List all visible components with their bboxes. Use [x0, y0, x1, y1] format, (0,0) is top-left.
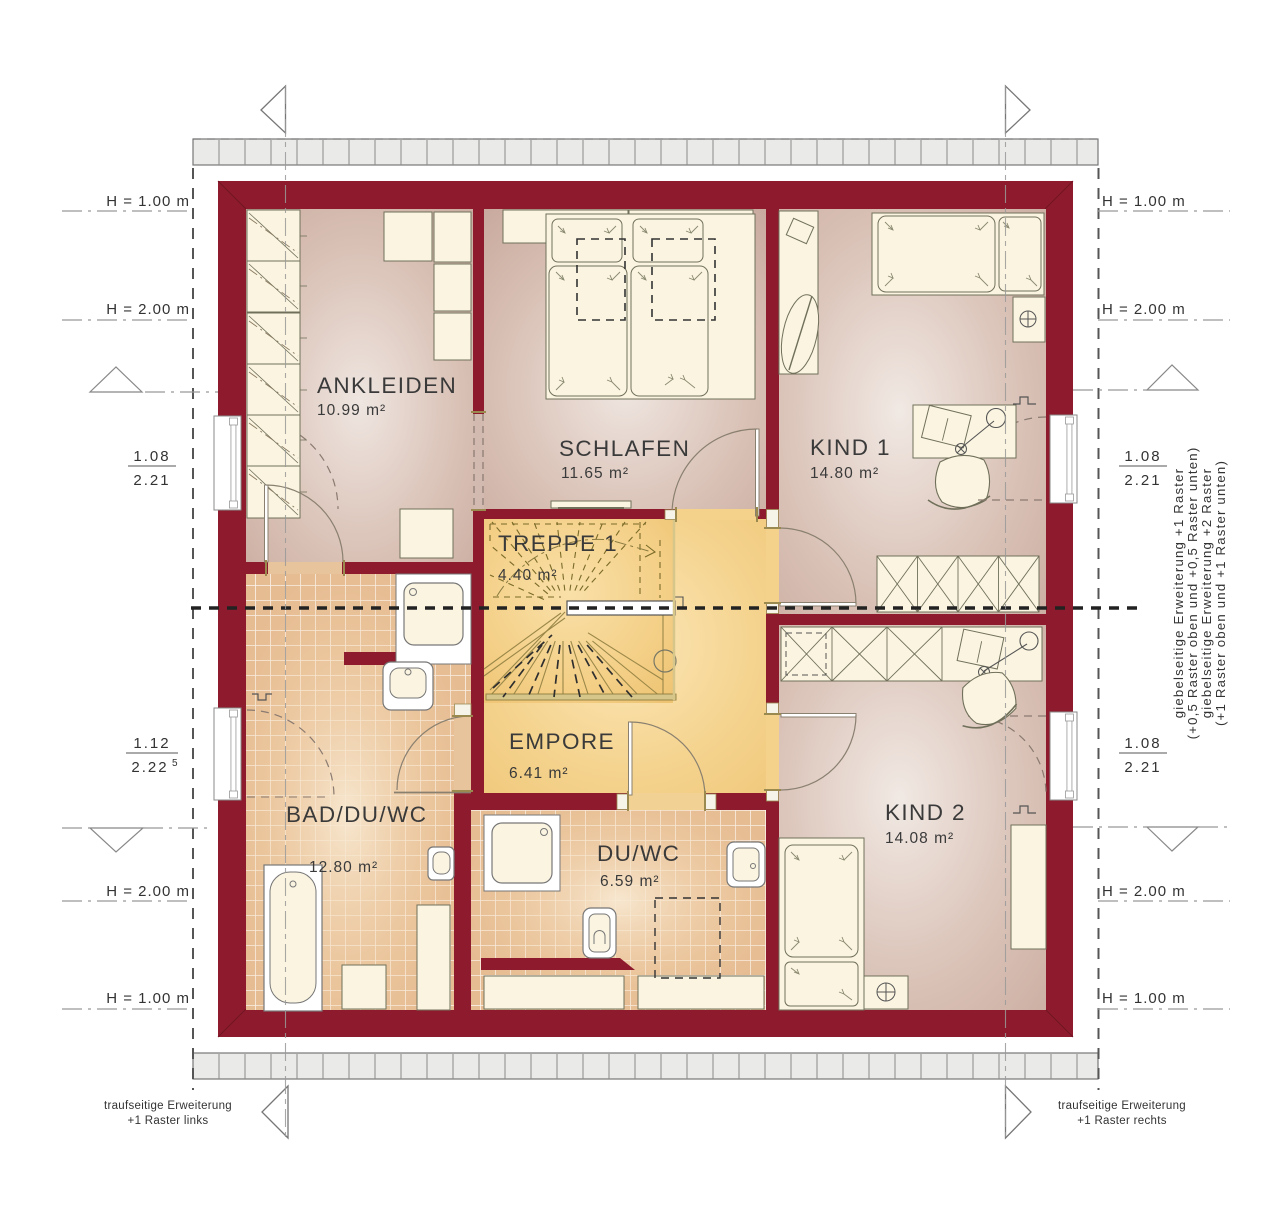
svg-text:EMPORE: EMPORE — [509, 729, 615, 754]
svg-text:1.12: 1.12 — [133, 735, 170, 752]
svg-text:1.08: 1.08 — [1124, 448, 1161, 465]
svg-text:H = 1.00 m: H = 1.00 m — [106, 990, 190, 1007]
svg-text:11.65 m²: 11.65 m² — [561, 465, 629, 482]
svg-text:ANKLEIDEN: ANKLEIDEN — [317, 373, 457, 398]
svg-text:12.80 m²: 12.80 m² — [309, 859, 378, 876]
svg-text:DU/WC: DU/WC — [597, 841, 680, 866]
svg-text:+1 Raster rechts: +1 Raster rechts — [1077, 1115, 1167, 1127]
svg-text:TREPPE 1: TREPPE 1 — [498, 531, 618, 556]
svg-text:giebelseitige Erweiterung +1 R: giebelseitige Erweiterung +1 Raster — [1171, 468, 1186, 719]
svg-text:giebelseitige Erweiterung +2 R: giebelseitige Erweiterung +2 Raster — [1199, 468, 1214, 719]
svg-text:2.22: 2.22 — [131, 759, 168, 776]
svg-text:(+1 Raster oben und +1 Raster: (+1 Raster oben und +1 Raster unten) — [1213, 460, 1228, 726]
svg-text:H = 1.00 m: H = 1.00 m — [1102, 193, 1186, 210]
svg-text:SCHLAFEN: SCHLAFEN — [559, 436, 690, 461]
svg-text:BAD/DU/WC: BAD/DU/WC — [286, 802, 427, 827]
svg-text:10.99 m²: 10.99 m² — [317, 402, 386, 419]
svg-text:H = 2.00 m: H = 2.00 m — [106, 301, 190, 318]
svg-text:2.21: 2.21 — [133, 472, 170, 489]
svg-text:4.40 m²: 4.40 m² — [498, 567, 558, 584]
svg-text:traufseitige Erweiterung: traufseitige Erweiterung — [1058, 1100, 1186, 1112]
svg-text:1.08: 1.08 — [133, 448, 170, 465]
svg-text:6.59 m²: 6.59 m² — [600, 873, 660, 890]
svg-text:H = 2.00 m: H = 2.00 m — [1102, 301, 1186, 318]
svg-text:5: 5 — [172, 758, 178, 769]
svg-text:KIND 1: KIND 1 — [810, 435, 891, 460]
svg-text:(+0,5 Raster oben und +0,5 Ras: (+0,5 Raster oben und +0,5 Raster unten) — [1185, 447, 1200, 740]
svg-text:14.08 m²: 14.08 m² — [885, 830, 954, 847]
svg-text:+1 Raster links: +1 Raster links — [128, 1115, 209, 1127]
svg-text:H = 1.00 m: H = 1.00 m — [106, 193, 190, 210]
svg-text:H = 1.00 m: H = 1.00 m — [1102, 990, 1186, 1007]
svg-text:2.21: 2.21 — [1124, 759, 1161, 776]
svg-text:6.41 m²: 6.41 m² — [509, 765, 569, 782]
svg-text:1.08: 1.08 — [1124, 735, 1161, 752]
svg-text:H = 2.00 m: H = 2.00 m — [106, 883, 190, 900]
svg-text:traufseitige Erweiterung: traufseitige Erweiterung — [104, 1100, 232, 1112]
svg-text:KIND 2: KIND 2 — [885, 800, 966, 825]
svg-text:H = 2.00 m: H = 2.00 m — [1102, 883, 1186, 900]
svg-text:2.21: 2.21 — [1124, 472, 1161, 489]
svg-text:14.80 m²: 14.80 m² — [810, 465, 879, 482]
